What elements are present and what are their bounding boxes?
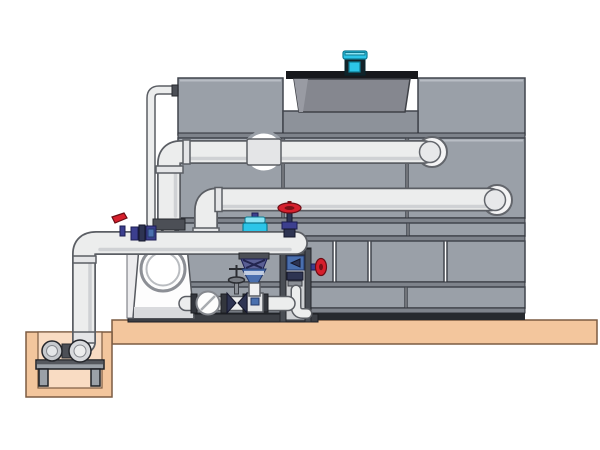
riser-flange [153, 219, 185, 230]
fan-cowl-shell [294, 79, 410, 112]
motor-window [349, 62, 360, 72]
pipe-flange [221, 294, 227, 313]
illustration-canvas: Cooling tower with external piping, circ… [0, 0, 600, 450]
casing-panel [371, 241, 444, 282]
pipe-wall-entry [420, 142, 441, 163]
stand-leg-right [91, 369, 100, 386]
tee-tap [251, 298, 259, 305]
pump-suction-opening [147, 253, 180, 286]
funnel-flange [239, 253, 269, 259]
elbow-collar [156, 166, 183, 173]
fan-deck-recess [283, 111, 418, 135]
actuator-cap [245, 217, 265, 223]
stand-deck-edge [37, 361, 103, 365]
cooling-tower-illustration: Cooling tower with external piping, circ… [0, 0, 600, 450]
globe-valve-bonnet [282, 222, 297, 229]
elbow-collar [183, 140, 190, 164]
lever-valve-stem [120, 226, 125, 236]
funnel-drop-pipe [249, 283, 260, 296]
lever-valve-handle [112, 213, 127, 223]
fan-motor [343, 51, 367, 78]
wall-stub-flange [172, 85, 178, 96]
funnel-band [244, 271, 264, 275]
casing-panel [407, 287, 525, 308]
globe-valve-body [284, 229, 295, 237]
check-valve-fitting [131, 227, 138, 240]
motor-end-cap [47, 346, 58, 357]
casing-panel [336, 241, 368, 282]
concrete-slab [112, 320, 597, 344]
casing-panel [178, 78, 283, 135]
motor-cap-highlight [345, 53, 365, 56]
side-valve-hub [319, 264, 323, 270]
pipe-wall-entry [485, 190, 506, 211]
elbow-collar [215, 188, 222, 212]
check-valve-cap [148, 229, 154, 237]
gate-valve-handwheel [229, 277, 245, 283]
concrete-pad [112, 320, 597, 344]
frame-device [287, 272, 303, 280]
elbow-end-cap [74, 345, 86, 357]
globe-valve-hub [285, 206, 295, 210]
check-valve-flange [139, 225, 145, 241]
stand-leg-left [39, 369, 48, 386]
casing-panel [418, 78, 525, 135]
casing-panel [447, 241, 525, 282]
pipe-coupling [247, 139, 281, 165]
elbow-collar [73, 256, 96, 263]
casing-panel [409, 223, 525, 236]
